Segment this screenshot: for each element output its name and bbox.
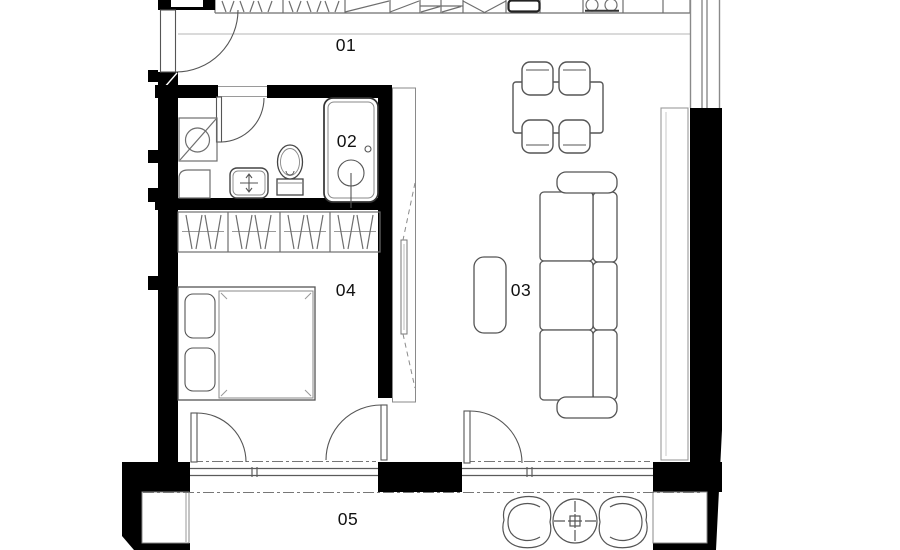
bedroom-balcony-door [191, 413, 246, 462]
right-window [691, 0, 720, 108]
wardrobe [178, 212, 380, 252]
washing-machine [179, 118, 217, 161]
bathroom-door [217, 87, 268, 143]
balcony-chair-left [503, 497, 551, 548]
room-label-04: 04 [336, 280, 356, 300]
living-balcony-door-right [464, 411, 522, 463]
kitchen-sink [509, 1, 540, 12]
sofa [540, 172, 617, 418]
bathtub [324, 98, 378, 208]
sliding-panel-cabinet [393, 88, 416, 402]
dining-chair [559, 120, 590, 153]
coffee-table [474, 257, 506, 333]
balcony-chair-right [599, 497, 647, 548]
balcony-table [553, 499, 597, 543]
room-label-05: 05 [338, 509, 358, 529]
fridge-unit [463, 1, 506, 13]
windows [143, 0, 720, 493]
double-bed [178, 287, 315, 400]
room-label-01: 01 [336, 35, 356, 55]
balcony-column-left [142, 492, 189, 543]
sofa-armrest [557, 397, 617, 418]
balcony [503, 497, 647, 548]
bathroom-sink [230, 168, 268, 198]
kitchen-counter-row [178, 0, 690, 34]
toilet [277, 145, 303, 195]
room-label-02: 02 [337, 131, 357, 151]
balcony-column-right [653, 492, 707, 543]
pillow [185, 294, 215, 338]
dining-set [513, 62, 603, 153]
corner-cabinet [345, 1, 419, 12]
dining-chair [522, 62, 553, 95]
sofa-armrest [557, 172, 617, 193]
floor-plan: 01 02 03 04 05 [0, 0, 900, 550]
cooktop [585, 0, 619, 11]
hall-closet-hangers [222, 1, 339, 12]
dining-chair [559, 62, 590, 95]
living-balcony-door-left [326, 405, 387, 460]
pillow [185, 348, 215, 391]
room-label-03: 03 [511, 280, 531, 300]
bathroom [179, 98, 378, 208]
living-room [393, 62, 689, 460]
entry-door [161, 10, 239, 72]
tv-cabinet [661, 108, 688, 460]
left-exterior-wall [158, 72, 178, 463]
balcony-wall-middle [378, 462, 462, 492]
laundry-basket [179, 170, 210, 198]
bathroom-wall-top-left [155, 85, 218, 98]
balcony-wall-left [122, 462, 190, 492]
right-exterior-wall [690, 108, 722, 550]
bathroom-wall-top-right [267, 85, 392, 98]
balcony-pier-left [122, 492, 142, 550]
dining-chair [522, 120, 553, 153]
bedroom [178, 212, 380, 400]
walls [122, 0, 722, 550]
